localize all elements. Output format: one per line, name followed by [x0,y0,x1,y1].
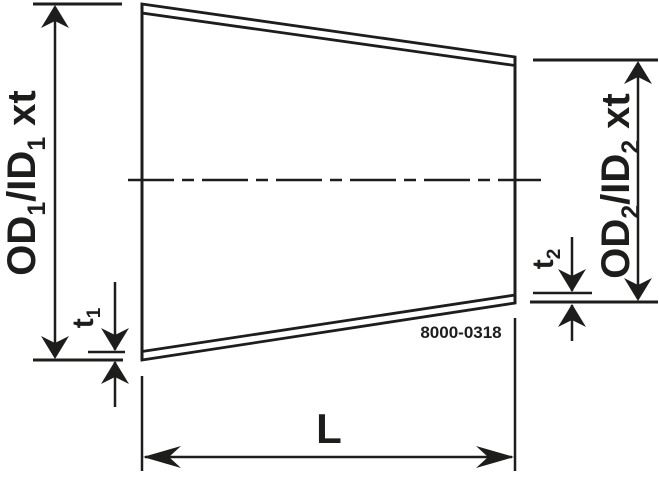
od2-label: OD2/ID2xt [594,93,645,279]
od1-label-suffix: xt [0,90,44,126]
t1-label: t1 [67,307,105,328]
od1-label-id: /ID [0,151,44,202]
od2-label-suffix: xt [594,93,638,129]
t1-label-main: t [67,318,100,328]
t2-label-sub: 2 [544,249,565,260]
reducer-dimension-drawing: OD1/ID1xt t1 OD2/ID2xt t2 L 8000-0318 [0,0,659,477]
t2-label-main: t [527,259,560,269]
od2-label-id: /ID [594,154,638,205]
od2-label-sub1: 2 [617,205,645,219]
t2-label: t2 [527,249,565,270]
length-label: L [316,405,342,452]
technical-drawing-page: OD1/ID1xt t1 OD2/ID2xt t2 L 8000-0318 [0,0,659,477]
od2-label-main: OD [594,219,638,279]
od1-label-sub1: 1 [23,202,51,216]
od1-label-sub2: 1 [23,137,51,151]
od2-label-sub2: 2 [617,140,645,154]
od1-label-main: OD [0,216,44,276]
top-wall-section [142,4,515,66]
t1-label-sub: 1 [84,307,105,318]
part-number: 8000-0318 [420,323,501,342]
od1-label: OD1/ID1xt [0,90,51,276]
